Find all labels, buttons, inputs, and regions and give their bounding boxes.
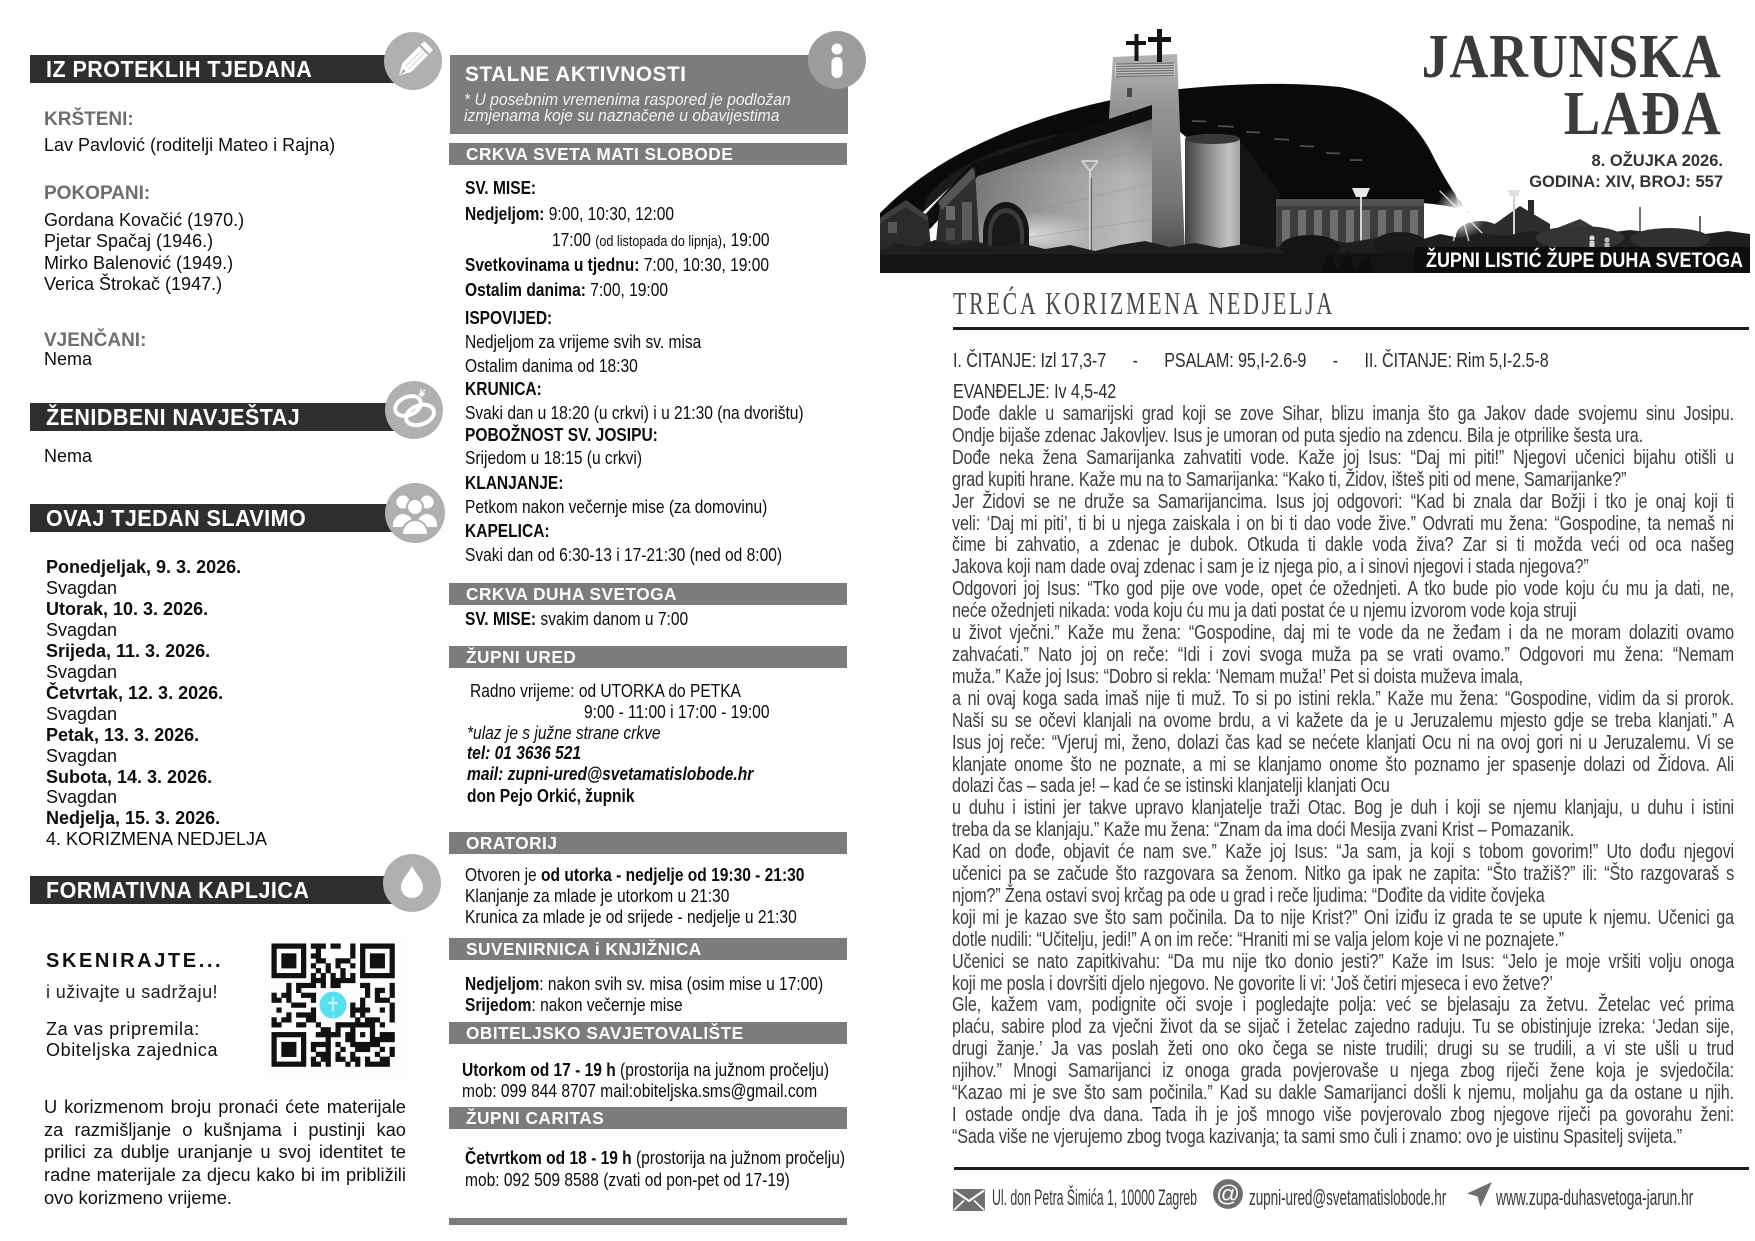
svg-text:@: @ [1216,1180,1240,1206]
svg-text:ŽUPNI LISTIĆ ŽUPE DUHA SVETOGA: ŽUPNI LISTIĆ ŽUPE DUHA SVETOGA [1426,248,1743,272]
